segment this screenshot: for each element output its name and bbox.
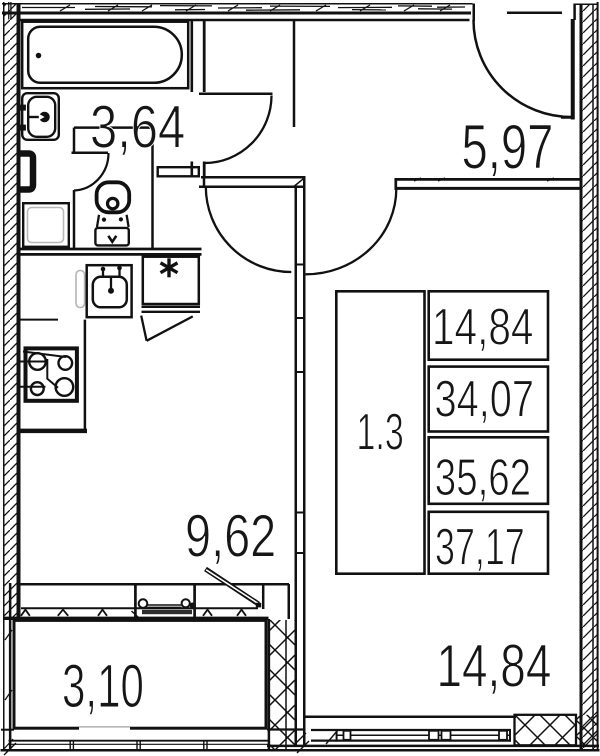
svg-text:3,64: 3,64	[90, 93, 185, 161]
svg-text:37,17: 37,17	[435, 519, 525, 576]
svg-text:9,62: 9,62	[185, 503, 276, 570]
svg-text:34,07: 34,07	[435, 369, 535, 427]
svg-text:14,84: 14,84	[432, 297, 533, 355]
svg-text:14,84: 14,84	[437, 634, 552, 700]
svg-text:3,10: 3,10	[62, 653, 144, 721]
svg-text:5,97: 5,97	[462, 112, 554, 182]
svg-text:35,62: 35,62	[435, 448, 531, 506]
svg-text:1.3: 1.3	[357, 404, 404, 461]
